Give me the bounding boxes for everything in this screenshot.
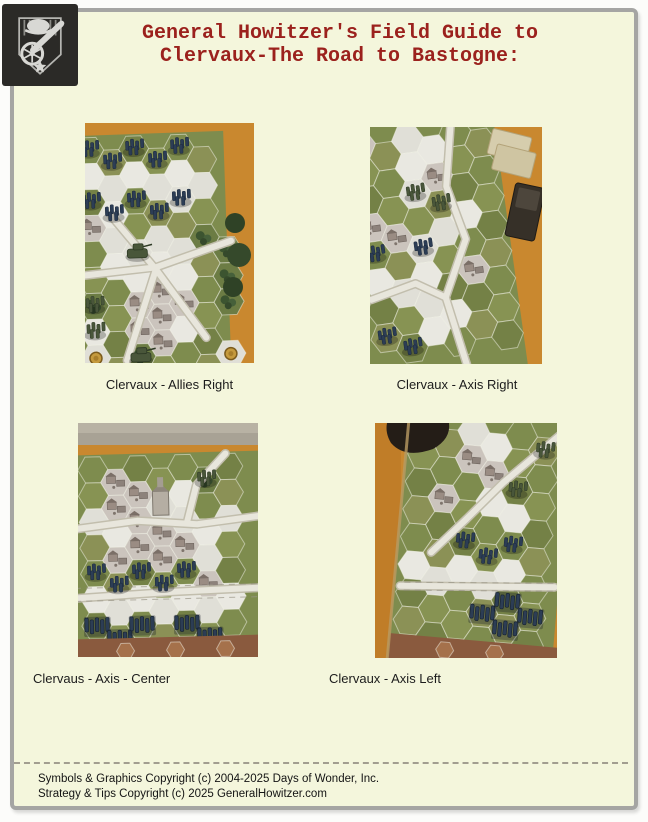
footer-copyright: Symbols & Graphics Copyright (c) 2004-20… xyxy=(38,772,379,801)
footer-line-2: Strategy & Tips Copyright (c) 2025 Gener… xyxy=(38,787,379,802)
board-photo-allies-right xyxy=(85,123,254,363)
photo-caption-allies-right: Clervaux - Allies Right xyxy=(85,377,254,392)
footer-line-1: Symbols & Graphics Copyright (c) 2004-20… xyxy=(38,772,379,787)
howitzer-cannon-icon xyxy=(7,9,73,81)
board-photo-axis-left xyxy=(375,423,557,658)
photo-caption-axis-left: Clervaux - Axis Left xyxy=(329,671,441,686)
photo-clervaux-allies-right xyxy=(85,123,254,363)
field-guide-page: General Howitzer's Field Guide to Clerva… xyxy=(0,0,648,822)
board-photo-axis-center xyxy=(78,423,258,657)
page-title-line-2: Clervaux-The Road to Bastogne: xyxy=(60,45,620,68)
board-photo-axis-right xyxy=(370,127,542,364)
site-logo xyxy=(2,4,78,86)
page-title-line-1: General Howitzer's Field Guide to xyxy=(60,22,620,45)
photo-caption-axis-right: Clervaux - Axis Right xyxy=(372,377,542,392)
photo-clervaux-axis-center xyxy=(78,423,258,657)
photo-clervaux-axis-left xyxy=(375,423,557,658)
photo-caption-axis-center: Clervaus - Axis - Center xyxy=(33,671,170,686)
photo-clervaux-axis-right xyxy=(370,127,542,364)
page-title: General Howitzer's Field Guide to Clerva… xyxy=(60,22,620,68)
footer-divider xyxy=(14,762,628,764)
